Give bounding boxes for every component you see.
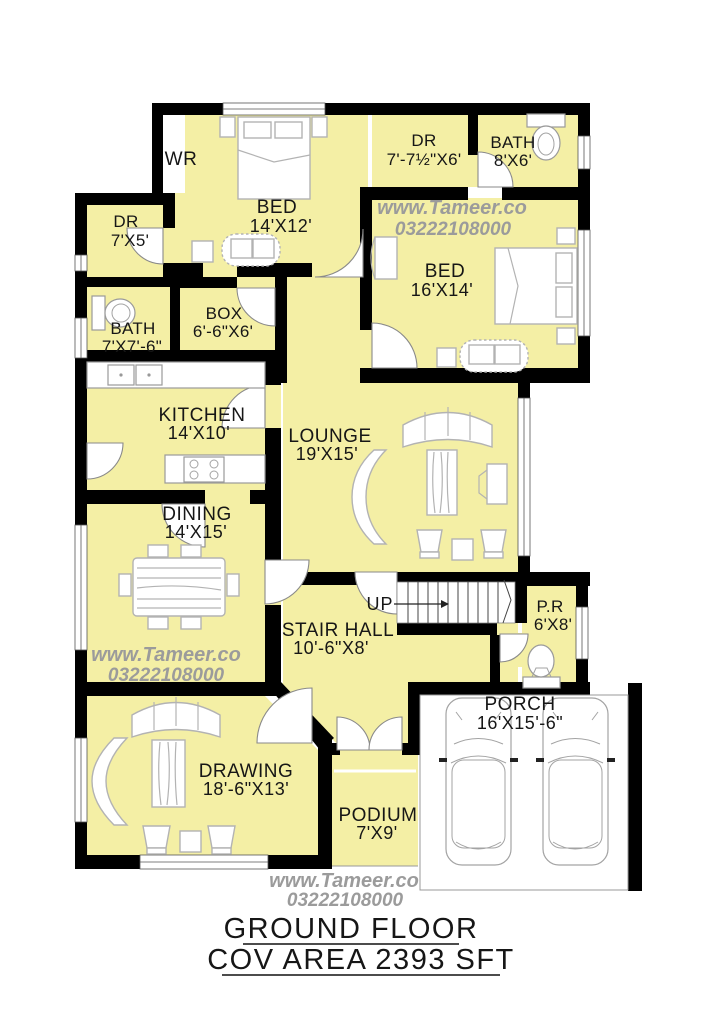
room-dims-lounge: 19'X15' [296,444,358,464]
chair-icon [119,574,131,596]
room-dims-bath2: 7'X7'-6" [102,337,162,356]
room-label-bed2: BED [425,261,466,282]
wall [75,193,175,205]
wall [318,738,332,866]
watermark-phone: 03222108000 [287,890,404,911]
floor-plan-page: WR BED 14'X12' DR 7'-7½"X6' BATH 8'X6' D… [0,0,712,1024]
side-table-icon [192,241,213,262]
watermark-phone: 03222108000 [108,665,225,686]
window [518,398,530,556]
passage [287,277,360,383]
side-table-icon [437,348,456,367]
wall [468,103,478,155]
wall [163,263,203,277]
floor-plan-drawing: WR BED 14'X12' DR 7'-7½"X6' BATH 8'X6' D… [0,0,712,1024]
wall [265,504,281,560]
chair-icon [181,545,201,557]
wall [152,103,163,203]
wall [75,855,140,869]
room-dims-pr: 6'X8' [534,615,572,634]
wall [163,193,175,228]
room-label-box: BOX [206,304,243,323]
room-label-bath1: BATH [490,133,535,152]
room-dims-stair: 10'-6"X8' [293,638,369,658]
room-dims-bath1: 8'X6' [494,151,532,170]
chair-icon [143,826,170,848]
footer: GROUND FLOOR COV AREA 2393 SFT [207,913,515,976]
wall [397,623,497,635]
wall [75,490,205,504]
room-dims-kitchen: 14'X10' [168,423,230,443]
room-label-pr: P.R [536,597,563,616]
watermark-site: www.Tameer.co [377,197,527,219]
window [140,855,268,869]
chair-icon [148,617,168,629]
room-dims-dr2: 7'X5' [111,231,149,250]
wall [402,743,420,755]
nightstand-icon [220,117,235,137]
wall [268,855,332,869]
window [223,103,325,115]
nightstand-icon [557,228,575,244]
chair-icon [481,530,506,552]
floor-title: GROUND FLOOR [224,913,479,945]
wall [490,635,500,683]
room-label-bath2: BATH [110,319,155,338]
chair-icon [208,826,235,848]
watermark-site: www.Tameer.co [91,644,241,666]
side-table-icon [452,539,473,560]
chair-icon [417,530,442,552]
wall [170,277,237,288]
room-dims-dr1: 7'-7½"X6' [387,150,462,169]
room-dims-drawing: 18'-6"X13' [203,779,289,799]
chair-icon [227,574,239,596]
wall [515,572,527,623]
wall [397,572,518,582]
wall [250,490,281,504]
chair-icon [181,617,201,629]
nightstand-icon [312,117,327,137]
covered-area: COV AREA 2393 SFT [207,944,515,976]
dining-furniture [119,545,239,629]
wall [265,605,281,682]
side-table-icon [180,831,201,852]
room-label-dr1: DR [411,131,436,150]
chair-icon [148,545,168,557]
dresser-icon [375,237,397,279]
stove-icon [184,457,224,482]
window [75,255,87,271]
room-dims-box: 6'-6"X6' [193,322,253,341]
watermark-site: www.Tameer.co [269,870,419,892]
room-dims-bed1: 14'X12' [250,216,312,236]
room-label-dr2: DR [113,212,138,231]
window [578,230,590,336]
wall [325,103,590,115]
window [75,318,87,358]
room-dims-bed2: 16'X14' [411,280,473,300]
window [75,525,87,650]
room-label-porch: PORCH [484,694,555,715]
toilet-icon [92,296,105,330]
watermark-phone: 03222108000 [395,219,512,240]
room-lounge [283,383,518,572]
wall-porch [628,683,642,891]
room-dims-dining: 14'X15' [165,522,227,542]
window [576,607,588,659]
wall [408,682,420,752]
wall [75,277,175,287]
door-swing [257,688,312,743]
tv-icon [487,464,507,504]
nightstand-icon [557,328,575,344]
window [578,136,590,169]
room-label-bed1: BED [257,197,298,218]
toilet-icon [523,677,560,688]
room-dims-podium: 7'X9' [356,823,397,843]
window [75,738,87,822]
toilet-icon [527,114,565,127]
room-dims-porch: 16'X15'-6" [477,713,563,733]
stairs [394,580,515,623]
wall [265,360,281,385]
room-label-wr: WR [165,149,198,170]
stair-up-label: UP [366,594,393,614]
